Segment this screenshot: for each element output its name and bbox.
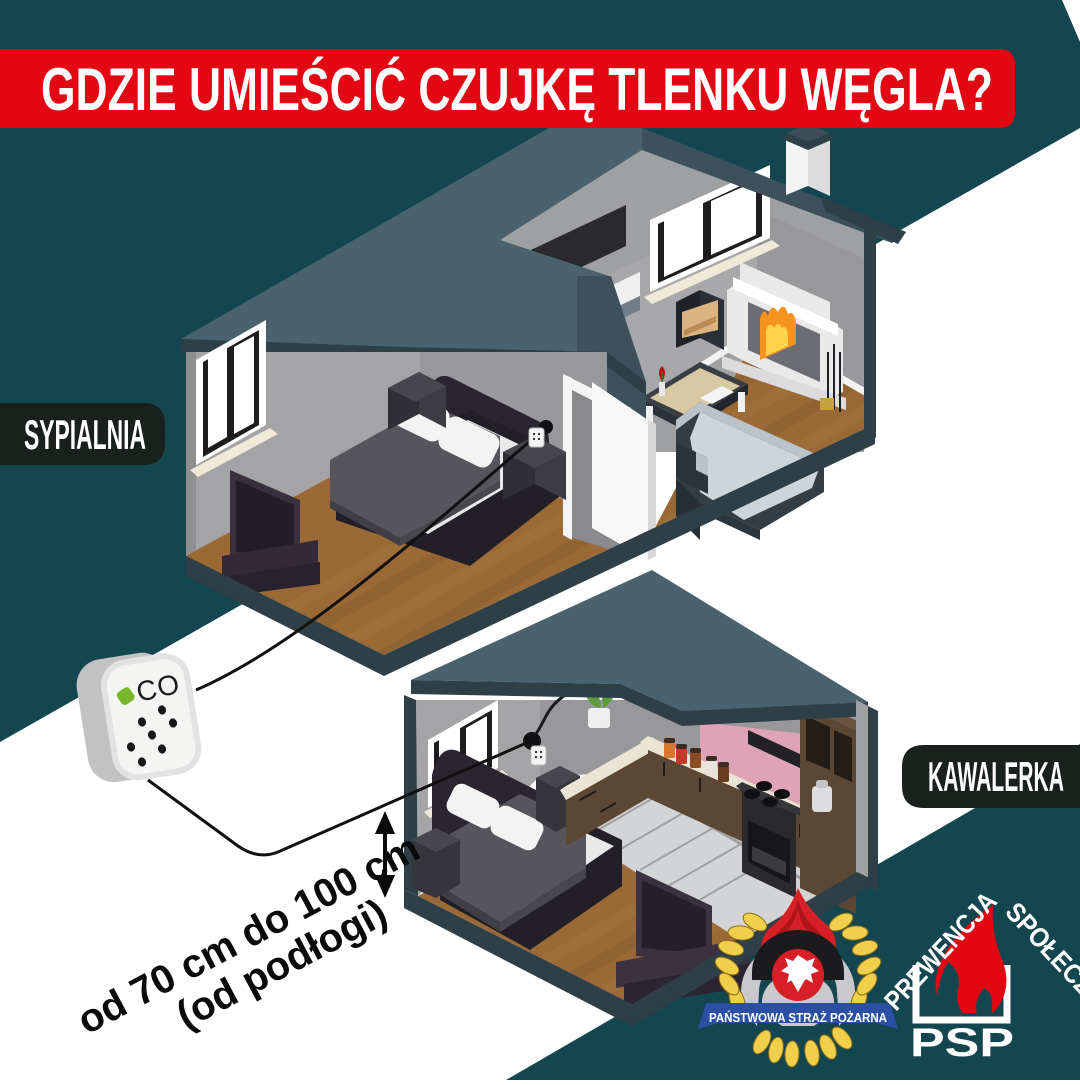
svg-text:KAWALERKA: KAWALERKA [928,753,1064,800]
svg-text:SYPIALNIA: SYPIALNIA [24,411,146,458]
svg-text:PSP: PSP [910,1021,1014,1065]
svg-text:GDZIE UMIEŚCIĆ CZUJKĘ TLENKU W: GDZIE UMIEŚCIĆ CZUJKĘ TLENKU WĘGLA? [41,56,993,123]
svg-text:PAŃSTWOWA STRAŻ POŻARNA: PAŃSTWOWA STRAŻ POŻARNA [709,1010,888,1025]
